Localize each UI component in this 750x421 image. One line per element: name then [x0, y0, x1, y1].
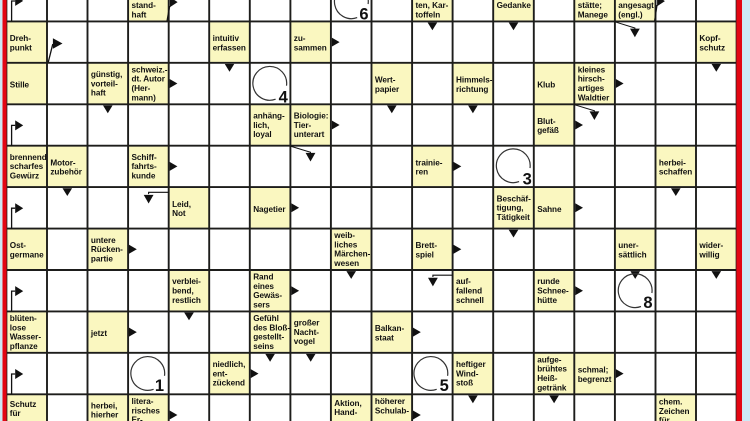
svg-text:ent-: ent- [213, 369, 228, 378]
svg-text:lose: lose [10, 323, 27, 332]
svg-text:hütte: hütte [537, 296, 557, 305]
svg-text:herbei-: herbei- [659, 158, 686, 167]
svg-text:Waldtier: Waldtier [578, 93, 610, 102]
svg-text:Wert-: Wert- [375, 76, 396, 85]
svg-text:partie: partie [91, 254, 113, 263]
svg-text:stätte;: stätte; [578, 1, 602, 10]
svg-text:mann): mann) [132, 93, 157, 102]
svg-text:spiel: spiel [416, 251, 434, 260]
svg-text:risches: risches [132, 406, 161, 415]
svg-text:8: 8 [643, 294, 652, 312]
svg-text:runde: runde [537, 277, 560, 286]
svg-text:blüten-: blüten- [10, 314, 37, 323]
svg-text:anhäng-: anhäng- [253, 112, 285, 121]
svg-text:schutz: schutz [699, 43, 725, 52]
svg-text:kleines: kleines [578, 65, 606, 74]
svg-text:(Her-: (Her- [132, 84, 151, 93]
svg-text:gestellt-: gestellt- [253, 333, 284, 342]
svg-text:zubehör: zubehör [50, 168, 82, 177]
svg-text:scharfes: scharfes [10, 162, 44, 171]
svg-text:pflanze: pflanze [10, 342, 38, 351]
svg-text:Not: Not [172, 209, 186, 218]
svg-text:Gefühl: Gefühl [253, 314, 279, 323]
svg-text:sers: sers [253, 300, 270, 309]
svg-text:Märchen-: Märchen- [334, 250, 370, 259]
svg-text:Beschäf-: Beschäf- [497, 194, 532, 203]
svg-text:günstig,: günstig, [91, 70, 122, 79]
svg-text:Rücken-: Rücken- [91, 245, 123, 254]
svg-text:begrenzt: begrenzt [578, 375, 612, 384]
svg-text:Heiß-: Heiß- [537, 374, 558, 383]
svg-text:punkt: punkt [10, 43, 32, 52]
svg-text:ren: ren [416, 168, 429, 177]
svg-text:Schiff-: Schiff- [132, 153, 157, 162]
svg-text:schmal;: schmal; [578, 366, 609, 375]
svg-text:richtung: richtung [456, 85, 488, 94]
svg-text:chem.: chem. [659, 398, 682, 407]
svg-text:wesen: wesen [333, 259, 359, 268]
svg-text:Stille: Stille [10, 81, 30, 90]
svg-text:lich,: lich, [253, 121, 269, 130]
svg-text:für: für [10, 409, 22, 418]
svg-text:willig: willig [698, 251, 719, 260]
svg-text:Schulab-: Schulab- [375, 406, 409, 415]
svg-text:staat: staat [375, 333, 394, 342]
svg-text:erfassen: erfassen [213, 43, 246, 52]
svg-text:toffeln: toffeln [416, 10, 441, 19]
svg-text:sammen: sammen [294, 43, 327, 52]
svg-text:Nagetier: Nagetier [253, 205, 286, 214]
svg-text:Nacht-: Nacht- [294, 328, 319, 337]
svg-text:schnell: schnell [456, 296, 484, 305]
svg-text:großer: großer [294, 319, 320, 328]
svg-text:verblei-: verblei- [172, 277, 201, 286]
svg-text:vorteil-: vorteil- [91, 79, 118, 88]
svg-text:Leid,: Leid, [172, 200, 191, 209]
svg-text:schweiz.-: schweiz.- [132, 65, 168, 74]
svg-text:gefäß: gefäß [537, 126, 559, 135]
svg-text:restlich: restlich [172, 296, 201, 305]
svg-text:Aktion,: Aktion, [334, 399, 361, 408]
svg-text:heftiger: heftiger [456, 360, 486, 369]
svg-text:(engl.): (engl.) [618, 10, 643, 19]
svg-text:stoß: stoß [456, 379, 473, 388]
svg-text:Blut-: Blut- [537, 117, 556, 126]
svg-text:aufge-: aufge- [537, 355, 562, 364]
svg-text:uner-: uner- [618, 241, 639, 250]
svg-text:kunde: kunde [132, 172, 156, 181]
svg-text:angesagt: angesagt [618, 1, 654, 10]
svg-text:des Bloß-: des Bloß- [253, 323, 290, 332]
svg-text:Er-: Er- [132, 416, 144, 421]
svg-text:weib-: weib- [333, 231, 355, 240]
svg-text:artiges: artiges [578, 84, 605, 93]
svg-text:niedlich,: niedlich, [213, 360, 246, 369]
svg-text:tigung,: tigung, [497, 204, 524, 213]
svg-text:Klub: Klub [537, 81, 555, 90]
svg-text:Manege: Manege [578, 10, 609, 19]
svg-text:sättlich: sättlich [618, 251, 646, 260]
svg-text:Himmels-: Himmels- [456, 76, 493, 85]
svg-text:untere: untere [91, 236, 116, 245]
svg-text:Sahne: Sahne [537, 205, 562, 214]
svg-text:haft: haft [132, 10, 147, 19]
svg-text:Motor-: Motor- [50, 158, 75, 167]
svg-text:brennend: brennend [10, 153, 47, 162]
svg-text:Balkan-: Balkan- [375, 324, 405, 333]
svg-text:germane: germane [10, 251, 44, 260]
svg-text:Wind-: Wind- [456, 369, 479, 378]
svg-text:jetzt: jetzt [90, 329, 107, 338]
svg-text:Kopf-: Kopf- [699, 34, 720, 43]
svg-text:schaffen: schaffen [659, 168, 692, 177]
svg-text:bend,: bend, [172, 287, 194, 296]
svg-text:hirsch-: hirsch- [578, 75, 605, 84]
svg-text:unterart: unterart [294, 130, 325, 139]
svg-text:4: 4 [279, 88, 289, 106]
svg-text:seins: seins [253, 342, 274, 351]
svg-text:papier: papier [375, 85, 400, 94]
svg-text:zu-: zu- [294, 34, 306, 43]
svg-text:Gedanke: Gedanke [497, 1, 532, 10]
svg-text:trainie-: trainie- [416, 158, 443, 167]
svg-text:ten, Kar-: ten, Kar- [416, 1, 449, 10]
svg-text:Wasser-: Wasser- [10, 333, 42, 342]
svg-text:Gewürz: Gewürz [10, 172, 39, 181]
svg-text:litera-: litera- [132, 397, 154, 406]
svg-text:Gewäs-: Gewäs- [253, 291, 282, 300]
svg-text:Dreh-: Dreh- [10, 34, 31, 43]
svg-text:Rand: Rand [253, 273, 273, 282]
svg-text:hierher: hierher [91, 411, 119, 420]
svg-text:3: 3 [523, 170, 532, 188]
svg-text:herbei,: herbei, [91, 401, 118, 410]
svg-text:Schutz: Schutz [10, 400, 37, 409]
svg-text:Ost-: Ost- [10, 241, 26, 250]
svg-text:Tätigkeit: Tätigkeit [497, 213, 531, 222]
svg-text:eines: eines [253, 282, 274, 291]
svg-text:1: 1 [155, 377, 164, 395]
svg-text:intuitiv: intuitiv [213, 34, 240, 43]
svg-text:Brett-: Brett- [416, 241, 438, 250]
svg-text:Zeichen: Zeichen [659, 407, 690, 416]
svg-text:6: 6 [359, 5, 368, 23]
svg-text:getränk: getränk [537, 383, 567, 392]
svg-text:wider-: wider- [698, 241, 723, 250]
svg-text:Tier-: Tier- [294, 121, 312, 130]
svg-text:zückend: zückend [213, 379, 245, 388]
svg-text:auf-: auf- [456, 277, 471, 286]
svg-text:vogel: vogel [294, 337, 315, 346]
svg-text:loyal: loyal [253, 130, 271, 139]
svg-text:fahrts-: fahrts- [132, 162, 157, 171]
svg-text:Schnee-: Schnee- [537, 287, 569, 296]
svg-text:brühtes: brühtes [537, 365, 567, 374]
svg-text:stand-: stand- [132, 1, 157, 10]
svg-text:haft: haft [91, 89, 106, 98]
svg-text:liches: liches [334, 240, 357, 249]
svg-text:für: für [659, 416, 671, 421]
svg-text:Biologie:: Biologie: [294, 112, 329, 121]
svg-text:dt. Autor: dt. Autor [132, 75, 166, 84]
svg-text:fallend: fallend [456, 287, 482, 296]
svg-text:5: 5 [440, 377, 449, 395]
svg-text:höherer: höherer [375, 397, 406, 406]
svg-text:Hand-: Hand- [334, 408, 357, 417]
